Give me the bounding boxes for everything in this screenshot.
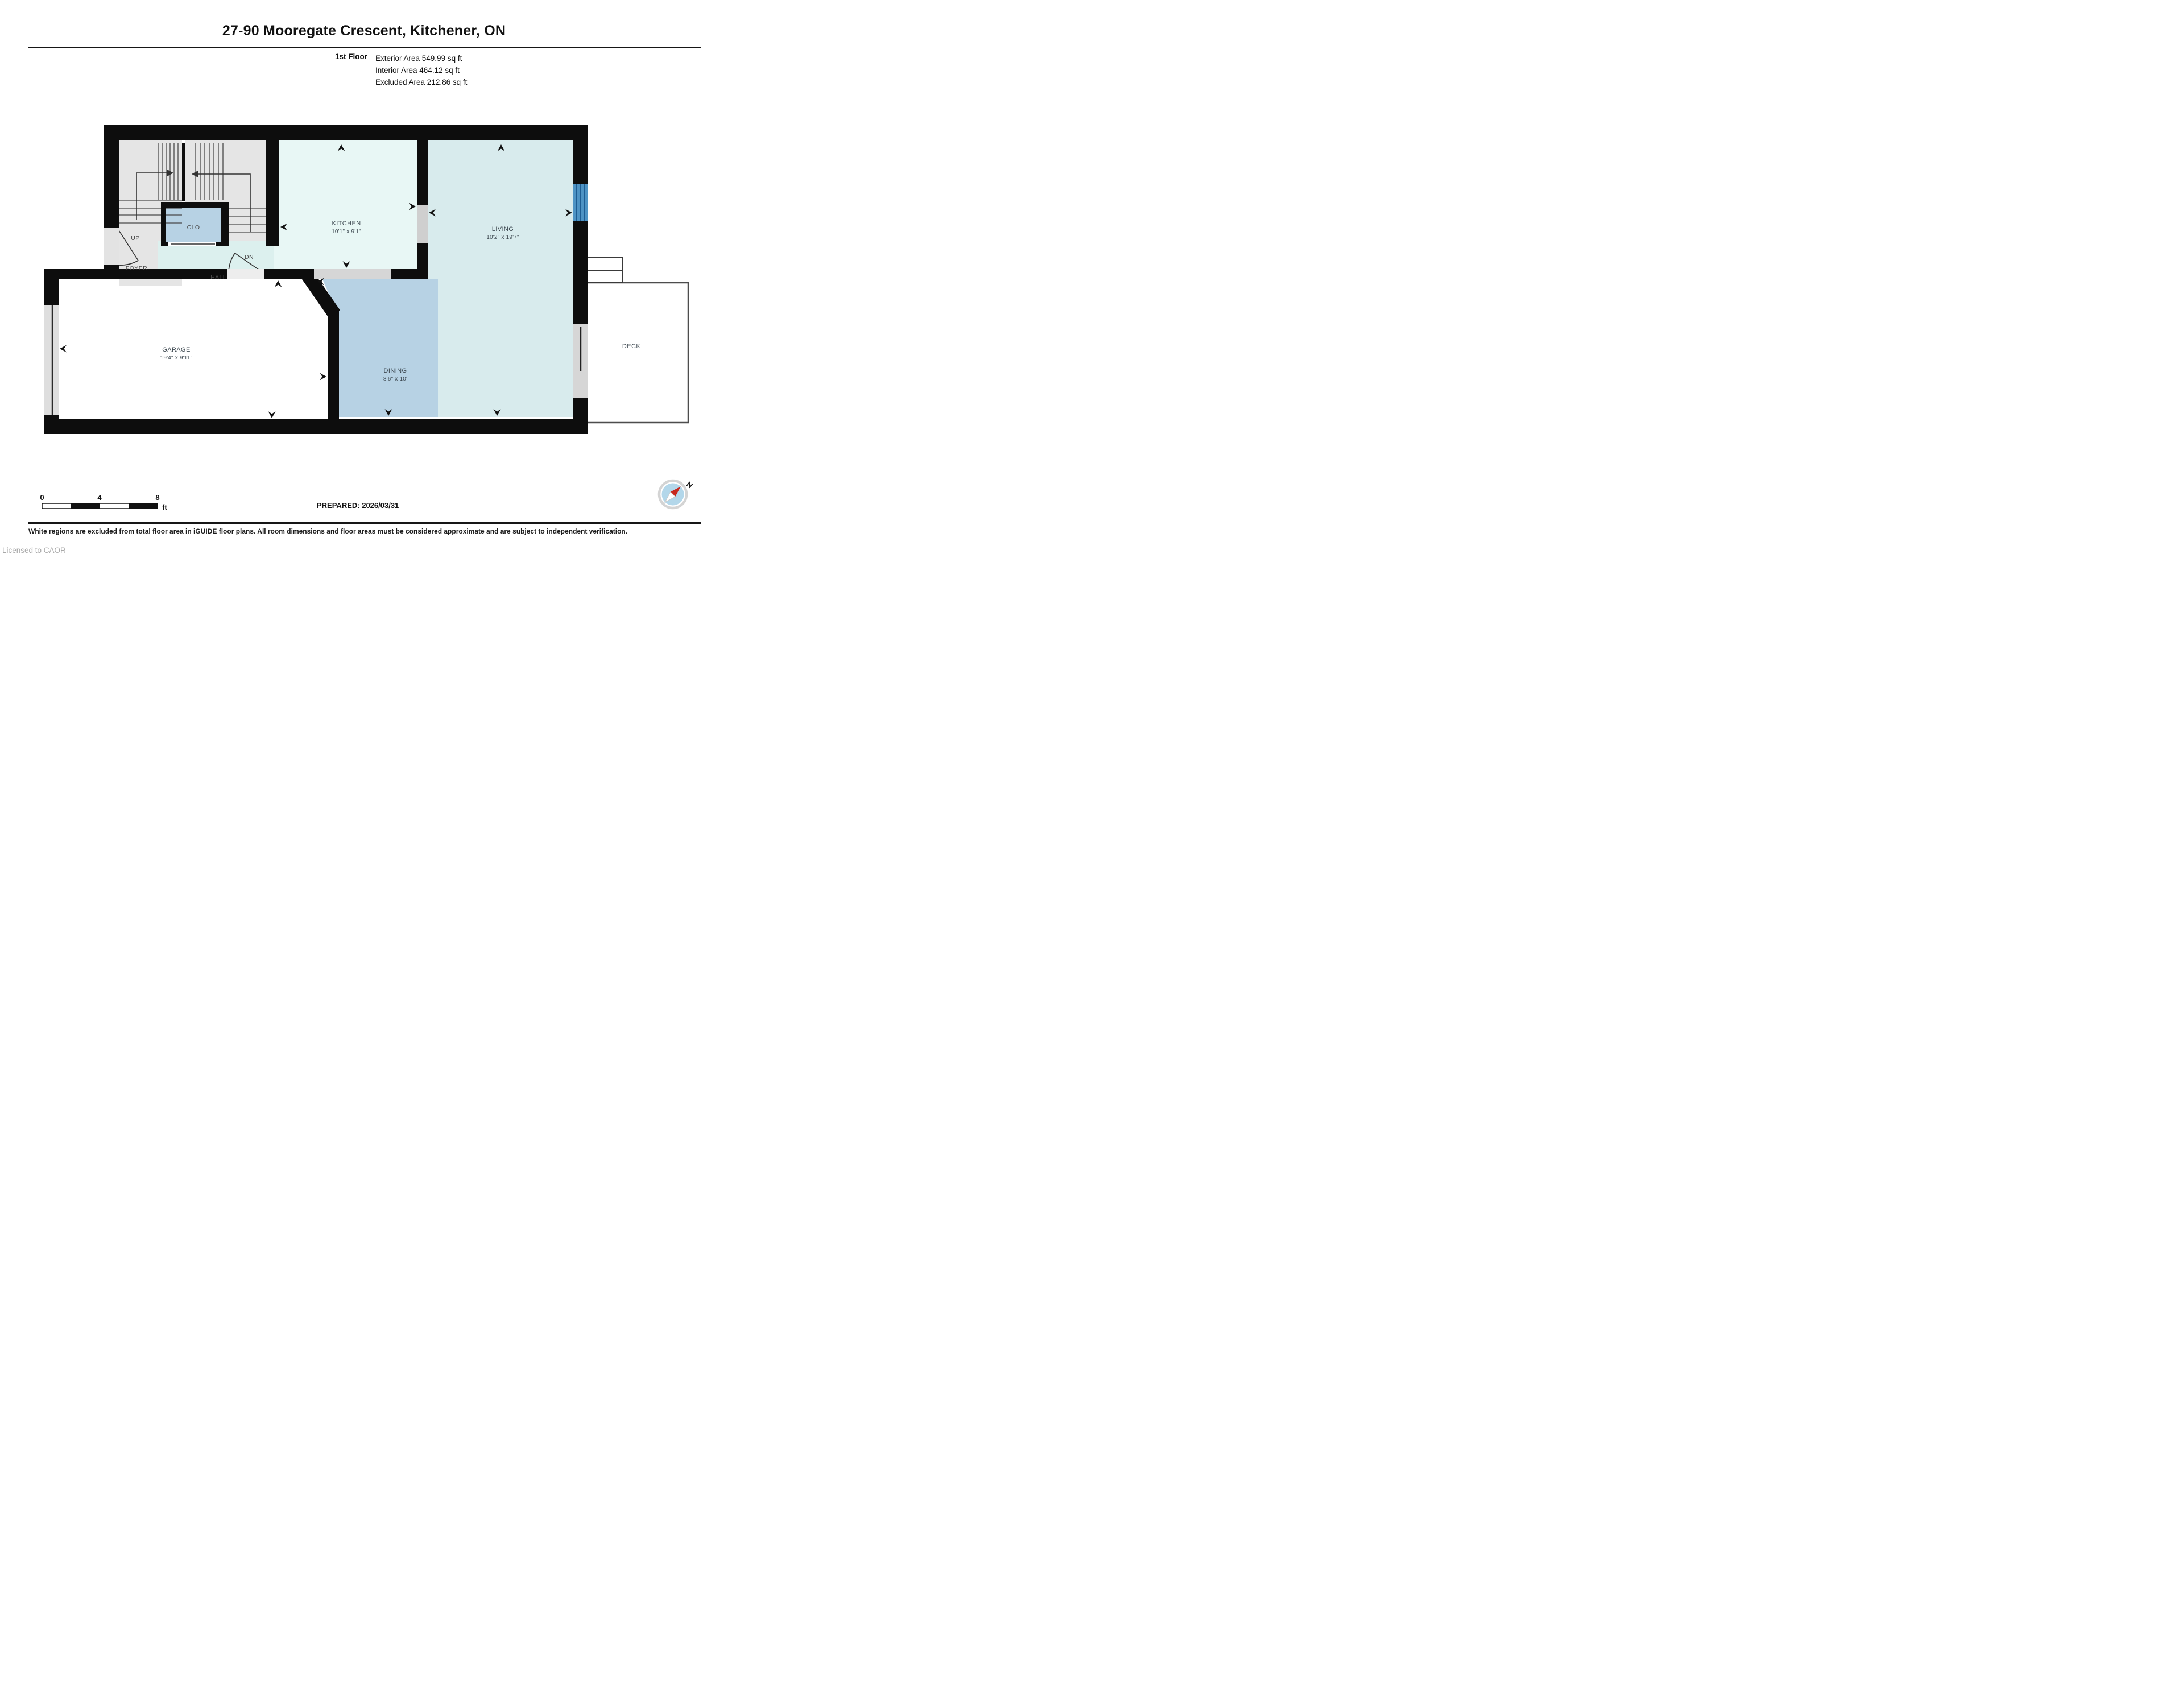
- kitchen-floor: [274, 140, 417, 269]
- kitchen-dims: 10'1" x 9'1": [332, 229, 361, 235]
- scale-unit: ft: [162, 503, 167, 511]
- kitchen-label: KITCHEN: [332, 220, 361, 227]
- dining-label: DINING: [384, 367, 407, 374]
- up-label: UP: [131, 235, 139, 242]
- foyer-label: FOYER: [126, 265, 147, 272]
- disclaimer-text: White regions are excluded from total fl…: [28, 527, 654, 535]
- living-dims: 10'2" x 19'7": [486, 234, 519, 241]
- scale-tick-0: 0: [40, 493, 44, 502]
- deck-structure: [577, 257, 688, 423]
- kitchen-living-opening: [417, 205, 428, 243]
- garage-overhead-door: [44, 305, 59, 415]
- scale-bar: 0 4 8 ft: [40, 493, 167, 511]
- dining-floor: [322, 279, 438, 417]
- compass-icon: N: [659, 480, 694, 508]
- garage-door-opening-hall: [227, 269, 264, 279]
- dn-label: DN: [245, 254, 254, 261]
- camera-arrow-icon: [60, 345, 67, 353]
- scale-tick-4: 4: [97, 493, 102, 502]
- camera-arrow-icon: [275, 280, 282, 287]
- camera-arrow-icon: [320, 373, 326, 381]
- prepared-date: PREPARED: 2026/03/31: [317, 501, 399, 510]
- dining-dims: 8'6" x 10': [383, 376, 407, 382]
- deck-outline: [577, 283, 688, 423]
- garage-dims: 19'4" x 9'11": [160, 355, 193, 361]
- camera-arrow-icon: [268, 411, 276, 418]
- living-window: [573, 184, 588, 221]
- entry-door-opening: [104, 228, 119, 265]
- living-label: LIVING: [492, 226, 514, 233]
- license-text: Licensed to CAOR: [2, 546, 66, 555]
- floor-plan-canvas: KITCHEN 10'1" x 9'1" LIVING 10'2" x 19'7…: [0, 0, 728, 562]
- garage-label: GARAGE: [162, 346, 190, 353]
- living-floor: [428, 140, 573, 417]
- deck-label: DECK: [622, 343, 640, 350]
- clo-door: [168, 242, 216, 246]
- floor-plan-page: 27-90 Mooregate Crescent, Kitchener, ON …: [0, 0, 728, 562]
- scale-tick-8: 8: [155, 493, 159, 502]
- deck-sliding-door: [573, 324, 588, 398]
- footer-divider: [28, 522, 701, 524]
- closet-label: CLO: [187, 224, 200, 231]
- kitchen-dining-opening: [314, 269, 391, 279]
- hall-label: HALL: [210, 274, 226, 281]
